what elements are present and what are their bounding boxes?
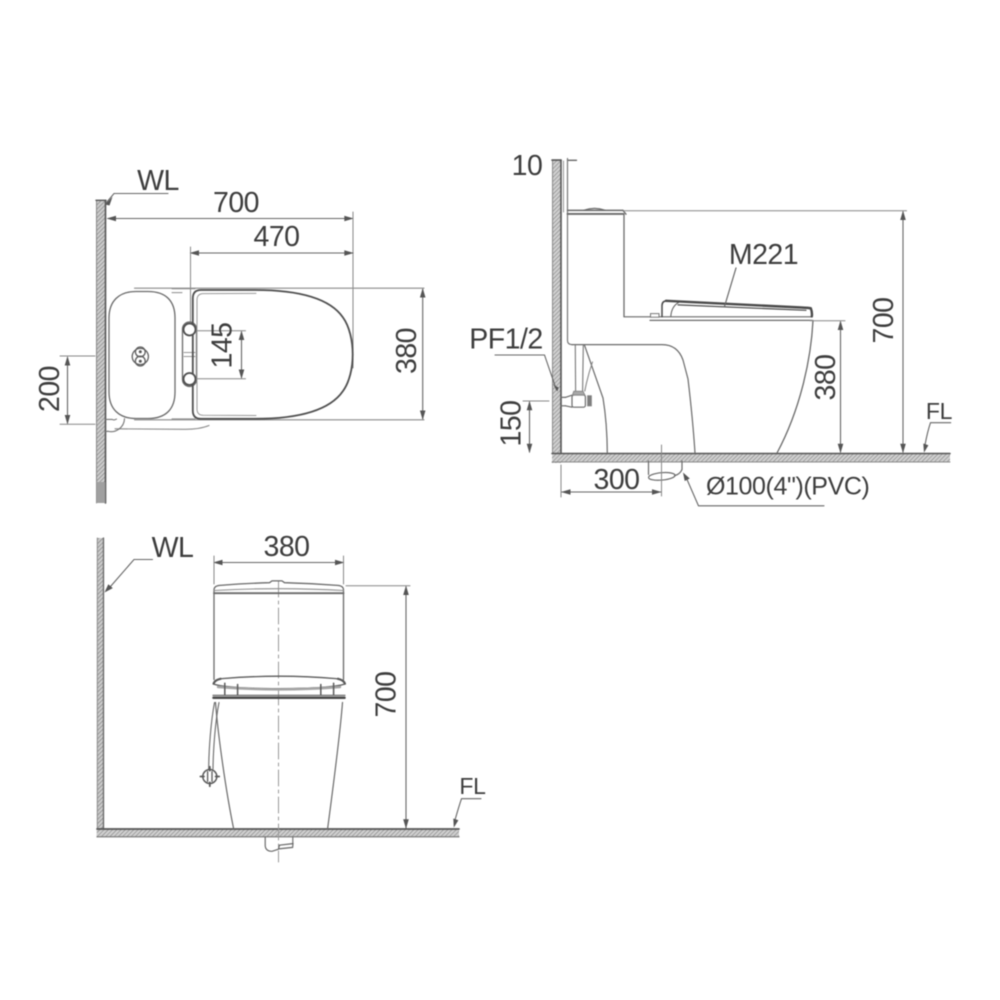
svg-text:380: 380 <box>810 354 842 400</box>
svg-text:300: 300 <box>593 464 639 496</box>
svg-text:700: 700 <box>213 187 259 219</box>
svg-text:WL: WL <box>152 532 194 564</box>
svg-text:10: 10 <box>512 150 543 182</box>
svg-text:PF1/2: PF1/2 <box>469 324 543 356</box>
svg-text:M221: M221 <box>729 239 798 271</box>
svg-text:700: 700 <box>868 297 900 343</box>
svg-text:WL: WL <box>137 165 179 197</box>
svg-text:Ø100(4")(PVC): Ø100(4")(PVC) <box>706 473 869 501</box>
svg-text:FL: FL <box>459 773 486 799</box>
svg-text:380: 380 <box>391 328 423 374</box>
svg-text:150: 150 <box>496 400 528 446</box>
svg-text:200: 200 <box>34 366 66 412</box>
svg-text:FL: FL <box>926 398 953 424</box>
svg-text:145: 145 <box>207 322 239 368</box>
svg-text:700: 700 <box>371 671 403 717</box>
svg-text:470: 470 <box>253 221 299 253</box>
svg-text:380: 380 <box>263 531 309 563</box>
